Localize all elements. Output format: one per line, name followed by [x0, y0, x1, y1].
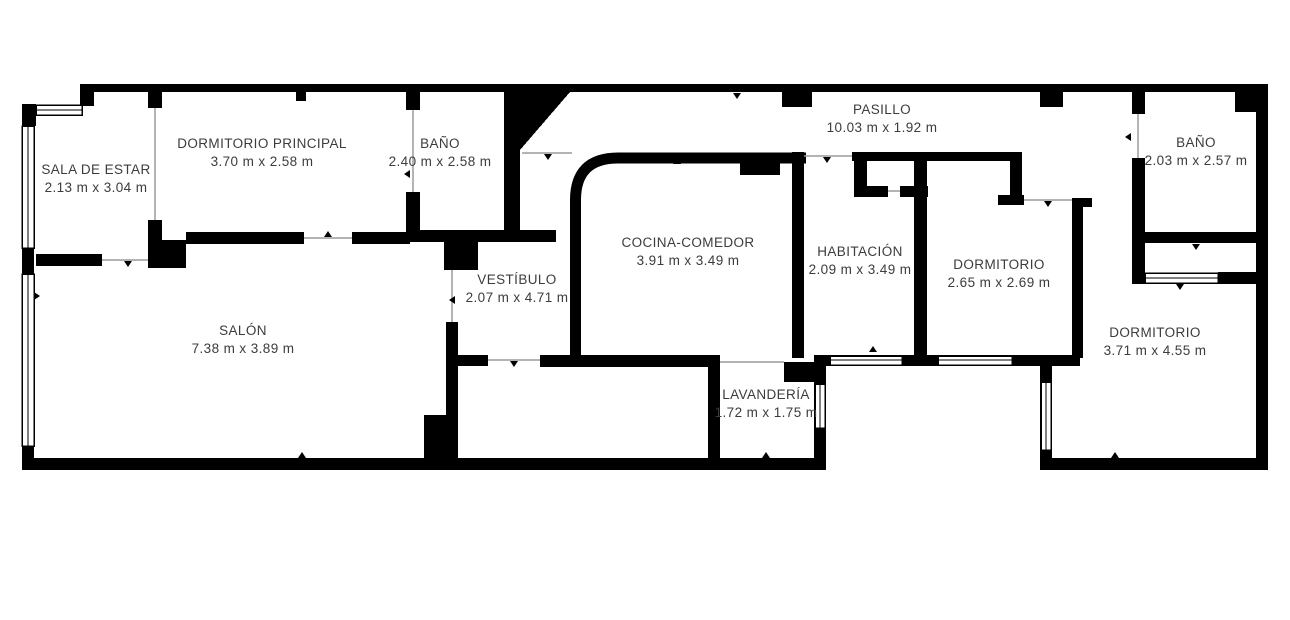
room-name: COCINA-COMEDOR	[621, 234, 754, 252]
room-dims: 2.65 m x 2.69 m	[948, 274, 1051, 292]
room-name: SALÓN	[192, 322, 295, 340]
room-name: DORMITORIO	[948, 256, 1051, 274]
room-dims: 2.03 m x 2.57 m	[1145, 152, 1248, 170]
room-name: BAÑO	[389, 135, 492, 153]
room-label-dormitorio-3: DORMITORIO 3.71 m x 4.55 m	[1104, 324, 1207, 360]
room-label-dormitorio-2: DORMITORIO 2.65 m x 2.69 m	[948, 256, 1051, 292]
room-label-bano-2: BAÑO 2.03 m x 2.57 m	[1145, 134, 1248, 170]
room-dims: 3.91 m x 3.49 m	[621, 252, 754, 270]
room-dims: 3.70 m x 2.58 m	[177, 153, 347, 171]
room-name: LAVANDERÍA	[715, 386, 818, 404]
room-dims: 1.72 m x 1.75 m	[715, 404, 818, 422]
room-dims: 3.71 m x 4.55 m	[1104, 342, 1207, 360]
room-name: DORMITORIO PRINCIPAL	[177, 135, 347, 153]
room-label-cocina-comedor: COCINA-COMEDOR 3.91 m x 3.49 m	[621, 234, 754, 270]
room-label-sala-de-estar: SALA DE ESTAR 2.13 m x 3.04 m	[41, 161, 150, 197]
room-dims: 2.13 m x 3.04 m	[41, 179, 150, 197]
room-label-dormitorio-principal: DORMITORIO PRINCIPAL 3.70 m x 2.58 m	[177, 135, 347, 171]
room-name: SALA DE ESTAR	[41, 161, 150, 179]
room-name: VESTÍBULO	[466, 271, 569, 289]
room-label-habitacion: HABITACIÓN 2.09 m x 3.49 m	[809, 243, 912, 279]
room-dims: 2.09 m x 3.49 m	[809, 261, 912, 279]
room-name: HABITACIÓN	[809, 243, 912, 261]
room-label-vestibulo: VESTÍBULO 2.07 m x 4.71 m	[466, 271, 569, 307]
room-dims: 2.40 m x 2.58 m	[389, 153, 492, 171]
floorplan-page: SALA DE ESTAR 2.13 m x 3.04 m DORMITORIO…	[0, 0, 1290, 620]
room-name: DORMITORIO	[1104, 324, 1207, 342]
room-label-salon: SALÓN 7.38 m x 3.89 m	[192, 322, 295, 358]
room-label-lavanderia: LAVANDERÍA 1.72 m x 1.75 m	[715, 386, 818, 422]
room-dims: 10.03 m x 1.92 m	[827, 119, 938, 137]
room-dims: 2.07 m x 4.71 m	[466, 289, 569, 307]
room-label-bano-1: BAÑO 2.40 m x 2.58 m	[389, 135, 492, 171]
room-name: PASILLO	[827, 101, 938, 119]
room-label-pasillo: PASILLO 10.03 m x 1.92 m	[827, 101, 938, 137]
room-dims: 7.38 m x 3.89 m	[192, 340, 295, 358]
room-name: BAÑO	[1145, 134, 1248, 152]
floorplan-drawing	[0, 0, 1290, 620]
